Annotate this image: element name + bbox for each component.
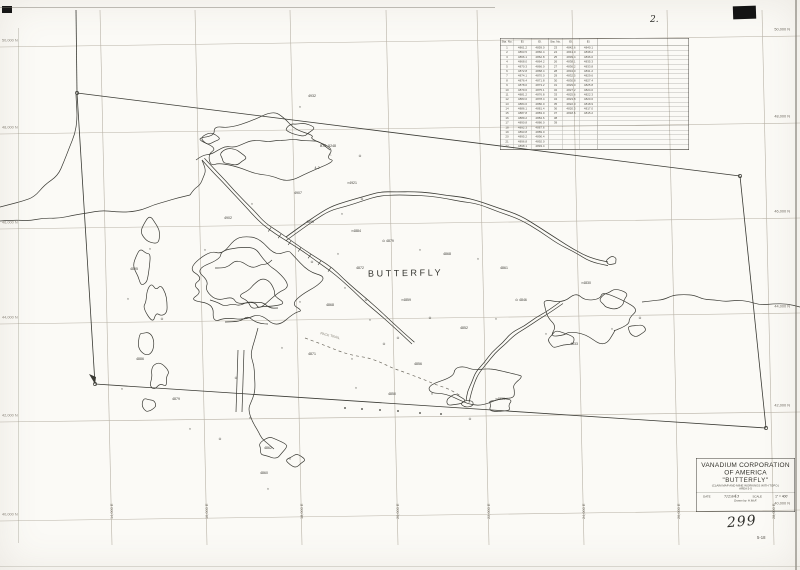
- table-cell: 11: [501, 93, 514, 97]
- map-annotation: 4868: [443, 252, 451, 256]
- map-annotation: ⊙: [469, 417, 472, 421]
- table-header-cell: El.: [580, 39, 598, 46]
- table-header-cell: Sta. No.: [501, 39, 514, 46]
- table-cell: 4878.0: [514, 84, 532, 88]
- table-cell: [562, 126, 580, 130]
- drawn-by: Drawn by: H.McF.: [697, 500, 795, 503]
- table-cell: 4879.6: [514, 88, 532, 92]
- map-annotation: 4907: [294, 191, 302, 195]
- table-cell: 26: [549, 60, 563, 64]
- date-label: DATE: [703, 496, 711, 499]
- table-cell: 4889.2: [514, 116, 532, 120]
- map-annotation: 4833: [570, 342, 578, 346]
- table-header-cell: Sta. No.: [549, 39, 563, 46]
- map-annotation: ×: [611, 327, 613, 331]
- map-annotation: ⊙ 4879: [382, 239, 394, 243]
- table-cell: 4859.0: [531, 46, 549, 50]
- table-cell: 4876.4: [514, 79, 532, 83]
- date-scale-row: DATE 7/29/43 SCALE 1" = 400': [697, 492, 795, 499]
- table-cell: 24: [549, 51, 563, 55]
- table-cell: 4861.2: [514, 46, 532, 50]
- table-blank-cell: [597, 46, 689, 50]
- table-blank-cell: [597, 51, 689, 55]
- table-cell: 4896.8: [514, 140, 532, 144]
- table-cell: 4886.0: [531, 121, 549, 125]
- map-annotation: ×4884: [351, 229, 361, 233]
- table-cell: 23: [549, 46, 563, 50]
- table-header-cell: El.: [562, 39, 580, 46]
- map-annotation: 4886: [136, 357, 144, 361]
- table-cell: [580, 126, 598, 130]
- table-blank-cell: [597, 60, 689, 64]
- table-cell: 4863.5: [514, 51, 532, 55]
- map-annotation: ×: [249, 416, 251, 420]
- table-cell: 4827.4: [580, 79, 598, 83]
- grid-label-north: 46,000 N: [2, 221, 27, 225]
- table-cell: 27: [549, 65, 563, 69]
- table-cell: 4838.2: [580, 51, 598, 55]
- survey-table: Sta. No.El.El.Sta. No.El.El.14861.24859.…: [500, 38, 689, 150]
- table-cell: 4818.6: [562, 112, 580, 116]
- map-annotation: ⊙: [429, 316, 432, 320]
- table-cell: 8: [501, 79, 514, 83]
- table-cell: 10: [501, 88, 514, 92]
- table-cell: 4873.2: [531, 84, 549, 88]
- table-cell: 4886.1: [514, 107, 532, 111]
- table-blank-cell: [597, 140, 689, 144]
- map-annotation: 4932: [308, 94, 316, 98]
- table-blank-cell: [597, 55, 689, 59]
- table-cell: 4893.4: [531, 145, 549, 149]
- map-annotation: ×: [495, 317, 497, 321]
- table-cell: [580, 145, 598, 149]
- table-cell: [549, 135, 563, 139]
- table-cell: [580, 135, 598, 139]
- table-cell: 13: [501, 102, 514, 106]
- table-cell: 5: [501, 65, 514, 69]
- table-cell: 4864.2: [531, 60, 549, 64]
- table-cell: 4839.4: [562, 55, 580, 59]
- map-annotation: ⊙: [219, 437, 222, 441]
- map-annotation: ×: [337, 252, 339, 256]
- table-cell: 4872.8: [514, 69, 532, 73]
- table-cell: 34: [549, 98, 563, 102]
- table-cell: 4884.6: [531, 116, 549, 120]
- table-cell: 4827.2: [562, 88, 580, 92]
- table-cell: 4860.4: [531, 51, 549, 55]
- table-cell: [549, 145, 563, 149]
- table-header-cell: El.: [531, 39, 549, 46]
- table-cell: [549, 126, 563, 130]
- claim-title: "BUTTERFLY": [697, 477, 795, 484]
- table-cell: 4874.1: [514, 74, 532, 78]
- map-annotation: 4868: [326, 303, 334, 307]
- table-blank-cell: [597, 69, 689, 73]
- table-cell: 4831.2: [580, 69, 598, 73]
- map-annotation: ⊙: [365, 298, 368, 302]
- table-cell: 4887.6: [531, 126, 549, 130]
- table-cell: 31: [549, 84, 563, 88]
- map-annotation: B.M. 5248: [320, 144, 336, 148]
- table-blank-cell: [597, 39, 689, 46]
- map-annotation: ⊙: [161, 317, 164, 321]
- map-annotation: 4872: [356, 266, 364, 270]
- table-cell: 4883.0: [514, 98, 532, 102]
- table-cell: [562, 140, 580, 144]
- table-cell: 4835.3: [580, 60, 598, 64]
- table-cell: 14: [501, 107, 514, 111]
- table-cell: 4890.4: [531, 135, 549, 139]
- map-annotation: ×: [189, 427, 191, 431]
- table-row: 224898.14893.4: [501, 145, 689, 150]
- map-sheet: Sta. No.El.El.Sta. No.El.El.14861.24859.…: [0, 0, 800, 570]
- date-value: 7/29/43: [724, 494, 739, 499]
- table-blank-cell: [597, 126, 689, 130]
- table-cell: 4822.0: [562, 102, 580, 106]
- table-blank-cell: [597, 88, 689, 92]
- table-blank-cell: [597, 74, 689, 78]
- table-cell: [549, 131, 563, 135]
- table-cell: 4876.8: [531, 93, 549, 97]
- table-cell: 4841.0: [562, 51, 580, 55]
- table-cell: 4895.2: [514, 135, 532, 139]
- map-annotation: ×: [341, 212, 343, 216]
- grid-label-north: 42,000 N: [2, 414, 27, 418]
- table-cell: 4830.8: [562, 79, 580, 83]
- map-annotation: ×: [281, 346, 283, 350]
- grid-label-east: 22,000 E: [487, 504, 491, 519]
- table-blank-cell: [597, 112, 689, 116]
- table-cell: 1: [501, 46, 514, 50]
- table-cell: 39: [549, 121, 563, 125]
- table-cell: 4878.4: [531, 98, 549, 102]
- pack-trail: [305, 338, 461, 396]
- scan-edge: [18, 28, 19, 543]
- table-cell: 4823.8: [562, 98, 580, 102]
- table-cell: 16: [501, 116, 514, 120]
- map-annotation: ⊙: [235, 376, 238, 380]
- table-blank-cell: [597, 135, 689, 139]
- claim-name-label: BUTTERFLY: [368, 267, 443, 278]
- grid-label-north: 46,000 N: [765, 210, 790, 214]
- table-cell: 29: [549, 74, 563, 78]
- table-cell: 4890.8: [514, 121, 532, 125]
- map-annotation: ×4859: [401, 298, 411, 302]
- table-cell: [580, 121, 598, 125]
- table-cell: 33: [549, 93, 563, 97]
- map-annotation: ⊙: [361, 197, 364, 201]
- map-annotation: ×: [251, 202, 253, 206]
- table-cell: 9: [501, 84, 514, 88]
- grid-label-north: 40,000 N: [2, 513, 27, 517]
- table-cell: 4862.8: [531, 55, 549, 59]
- map-annotation: 4-2: [314, 166, 319, 170]
- table-cell: 18: [501, 126, 514, 130]
- table-cell: 22: [501, 145, 514, 149]
- table-blank-cell: [597, 102, 689, 106]
- scan-edge: [795, 0, 797, 570]
- table-cell: [562, 121, 580, 125]
- table-cell: [562, 135, 580, 139]
- table-cell: 4820.3: [562, 107, 580, 111]
- table-cell: 4866.0: [531, 65, 549, 69]
- map-annotation: ×: [351, 357, 353, 361]
- scan-edge: [0, 566, 800, 567]
- grid-label-north: 42,000 N: [765, 404, 790, 408]
- map-annotation: ×: [289, 457, 291, 461]
- grid-label-east: 20,000 E: [396, 504, 400, 519]
- map-annotation: 4850: [388, 392, 396, 396]
- scan-corner-mark: [733, 6, 756, 20]
- table-cell: 4868.0: [514, 60, 532, 64]
- map-annotation: ×: [344, 286, 346, 290]
- grid-label-east: 14,000 E: [110, 504, 114, 519]
- table-cell: 4892.3: [514, 126, 532, 130]
- table-header-row: Sta. No.El.El.Sta. No.El.El.: [501, 39, 689, 47]
- table-cell: 4887.8: [514, 112, 532, 116]
- table-cell: 4817.0: [580, 107, 598, 111]
- table-cell: 4825.8: [580, 84, 598, 88]
- map-annotation: ×: [149, 247, 151, 251]
- table-cell: 4838.1: [562, 60, 580, 64]
- map-annotation: △: [329, 152, 332, 156]
- table-cell: 4825.6: [562, 93, 580, 97]
- table-cell: 4836.2: [562, 65, 580, 69]
- table-cell: [580, 116, 598, 120]
- table-cell: 4833.8: [580, 65, 598, 69]
- table-cell: 4870.3: [514, 65, 532, 69]
- map-annotation: 4895: [130, 267, 138, 271]
- table-cell: 17: [501, 121, 514, 125]
- table-blank-cell: [597, 131, 689, 135]
- map-number: 299: [726, 513, 757, 532]
- table-cell: 4818.9: [580, 102, 598, 106]
- table-blank-cell: [597, 98, 689, 102]
- table-header-cell: El.: [514, 39, 532, 46]
- map-annotation: ×: [299, 105, 301, 109]
- table-cell: 2: [501, 51, 514, 55]
- map-annotation: 4902: [224, 216, 232, 220]
- grid-label-east: 24,000 E: [582, 504, 586, 519]
- table-cell: 4836.0: [580, 55, 598, 59]
- table-cell: [549, 140, 563, 144]
- map-annotation: ×4830: [581, 281, 591, 285]
- mine-workings: [0, 95, 800, 467]
- company-name-line2: OF AMERICA: [697, 469, 795, 477]
- table-cell: 20: [501, 135, 514, 139]
- grid-label-north: 50,000 N: [765, 28, 790, 32]
- map-annotation: 4852: [460, 326, 468, 330]
- table-cell: 4883.0: [531, 112, 549, 116]
- table-cell: 25: [549, 55, 563, 59]
- map-annotation: ⊙: [359, 154, 362, 158]
- map-annotation: ×: [419, 248, 421, 252]
- map-annotation: ×: [267, 487, 269, 491]
- table-cell: 4822.3: [580, 93, 598, 97]
- table-blank-cell: [597, 116, 689, 120]
- table-cell: 15: [501, 112, 514, 116]
- table-blank-cell: [597, 107, 689, 111]
- map-annotation: ×: [431, 392, 433, 396]
- table-cell: [562, 116, 580, 120]
- grid-label-north: 50,000 N: [2, 39, 27, 43]
- map-annotation: ×: [299, 300, 301, 304]
- map-annotation: ×: [355, 386, 357, 390]
- table-cell: 36: [549, 107, 563, 111]
- table-cell: 4815.2: [580, 112, 598, 116]
- table-blank-cell: [597, 145, 689, 149]
- table-cell: 4880.0: [531, 102, 549, 106]
- table-cell: 6: [501, 69, 514, 73]
- table-cell: 4889.0: [531, 131, 549, 135]
- grid-label-east: 16,000 E: [205, 504, 209, 519]
- table-cell: 4842.6: [562, 46, 580, 50]
- table-cell: 4: [501, 60, 514, 64]
- table-blank-cell: [597, 65, 689, 69]
- table-cell: 4870.0: [531, 74, 549, 78]
- table-cell: 4829.6: [580, 74, 598, 78]
- table-cell: 19: [501, 131, 514, 135]
- table-cell: 38: [549, 116, 563, 120]
- map-annotation: ⊙: [397, 336, 400, 340]
- map-annotation: 4890: [306, 220, 314, 224]
- map-annotation: 4856: [414, 362, 422, 366]
- map-annotation: ⊙: [639, 316, 642, 320]
- table-cell: 3: [501, 55, 514, 59]
- map-annotation: ×: [121, 387, 123, 391]
- grid-label-north: 48,000 N: [765, 115, 790, 119]
- table-cell: 4884.6: [514, 102, 532, 106]
- map-annotation: ×4921: [347, 181, 357, 185]
- table-cell: 37: [549, 112, 563, 116]
- table-blank-cell: [597, 79, 689, 83]
- map-annotation: 4862: [264, 446, 272, 450]
- table-cell: [580, 131, 598, 135]
- title-block: VANADIUM CORPORATION OF AMERICA "BUTTERF…: [696, 458, 795, 512]
- table-cell: 4898.1: [514, 145, 532, 149]
- table-cell: 4840.1: [580, 46, 598, 50]
- table-cell: [580, 140, 598, 144]
- table-blank-cell: [597, 84, 689, 88]
- scale-value: 1" = 400': [775, 495, 788, 499]
- table-cell: 4832.5: [562, 74, 580, 78]
- table-cell: 4829.0: [562, 84, 580, 88]
- map-annotation: 4871: [308, 352, 316, 356]
- map-annotation: 4860: [260, 471, 268, 475]
- company-name-line1: VANADIUM CORPORATION: [697, 461, 795, 469]
- table-cell: 4866.1: [514, 55, 532, 59]
- table-cell: 32: [549, 88, 563, 92]
- sheet-number: 2.: [650, 15, 659, 25]
- table-blank-cell: [597, 121, 689, 125]
- table-cell: 4892.0: [531, 140, 549, 144]
- scan-edge: [0, 7, 495, 8]
- area-label: AREA 5-5: [697, 488, 795, 491]
- table-cell: 4834.0: [562, 69, 580, 73]
- table-cell: 4881.4: [531, 107, 549, 111]
- table-cell: 4875.1: [531, 88, 549, 92]
- grid-label-north: 44,000 N: [2, 316, 27, 320]
- grid-label-north: 48,000 N: [2, 126, 27, 130]
- map-annotation: ⊙: [383, 342, 386, 346]
- grid-label-north: 44,000 N: [765, 305, 790, 309]
- table-cell: 21: [501, 140, 514, 144]
- map-annotation: ×4839: [495, 397, 505, 401]
- table-cell: 4820.6: [580, 98, 598, 102]
- table-cell: 28: [549, 69, 563, 73]
- table-cell: 4871.8: [531, 79, 549, 83]
- map-annotation: ⊙: [311, 260, 314, 264]
- scale-label: SCALE: [752, 496, 762, 499]
- map-annotation: 4879: [172, 397, 180, 401]
- table-cell: 4881.2: [514, 93, 532, 97]
- table-blank-cell: [597, 93, 689, 97]
- table-cell: 7: [501, 74, 514, 78]
- map-annotation: ×: [369, 318, 371, 322]
- table-cell: 35: [549, 102, 563, 106]
- map-annotation: ×: [204, 248, 206, 252]
- map-annotation: ⊙ 4846: [515, 298, 527, 302]
- map-annotation: ×: [127, 297, 129, 301]
- map-annotation: ×: [477, 257, 479, 261]
- table-cell: 4868.4: [531, 69, 549, 73]
- table-cell: 12: [501, 98, 514, 102]
- table-cell: 4824.0: [580, 88, 598, 92]
- map-sub-number: 5-18: [757, 536, 765, 540]
- table-cell: [562, 145, 580, 149]
- table-cell: 4893.8: [514, 131, 532, 135]
- map-annotation: 4861: [500, 266, 508, 270]
- grid-label-east: 26,000 E: [677, 504, 681, 519]
- map-annotation: ×: [545, 332, 547, 336]
- table-cell: 30: [549, 79, 563, 83]
- grid-label-east: 18,000 E: [300, 504, 304, 519]
- table-cell: [562, 131, 580, 135]
